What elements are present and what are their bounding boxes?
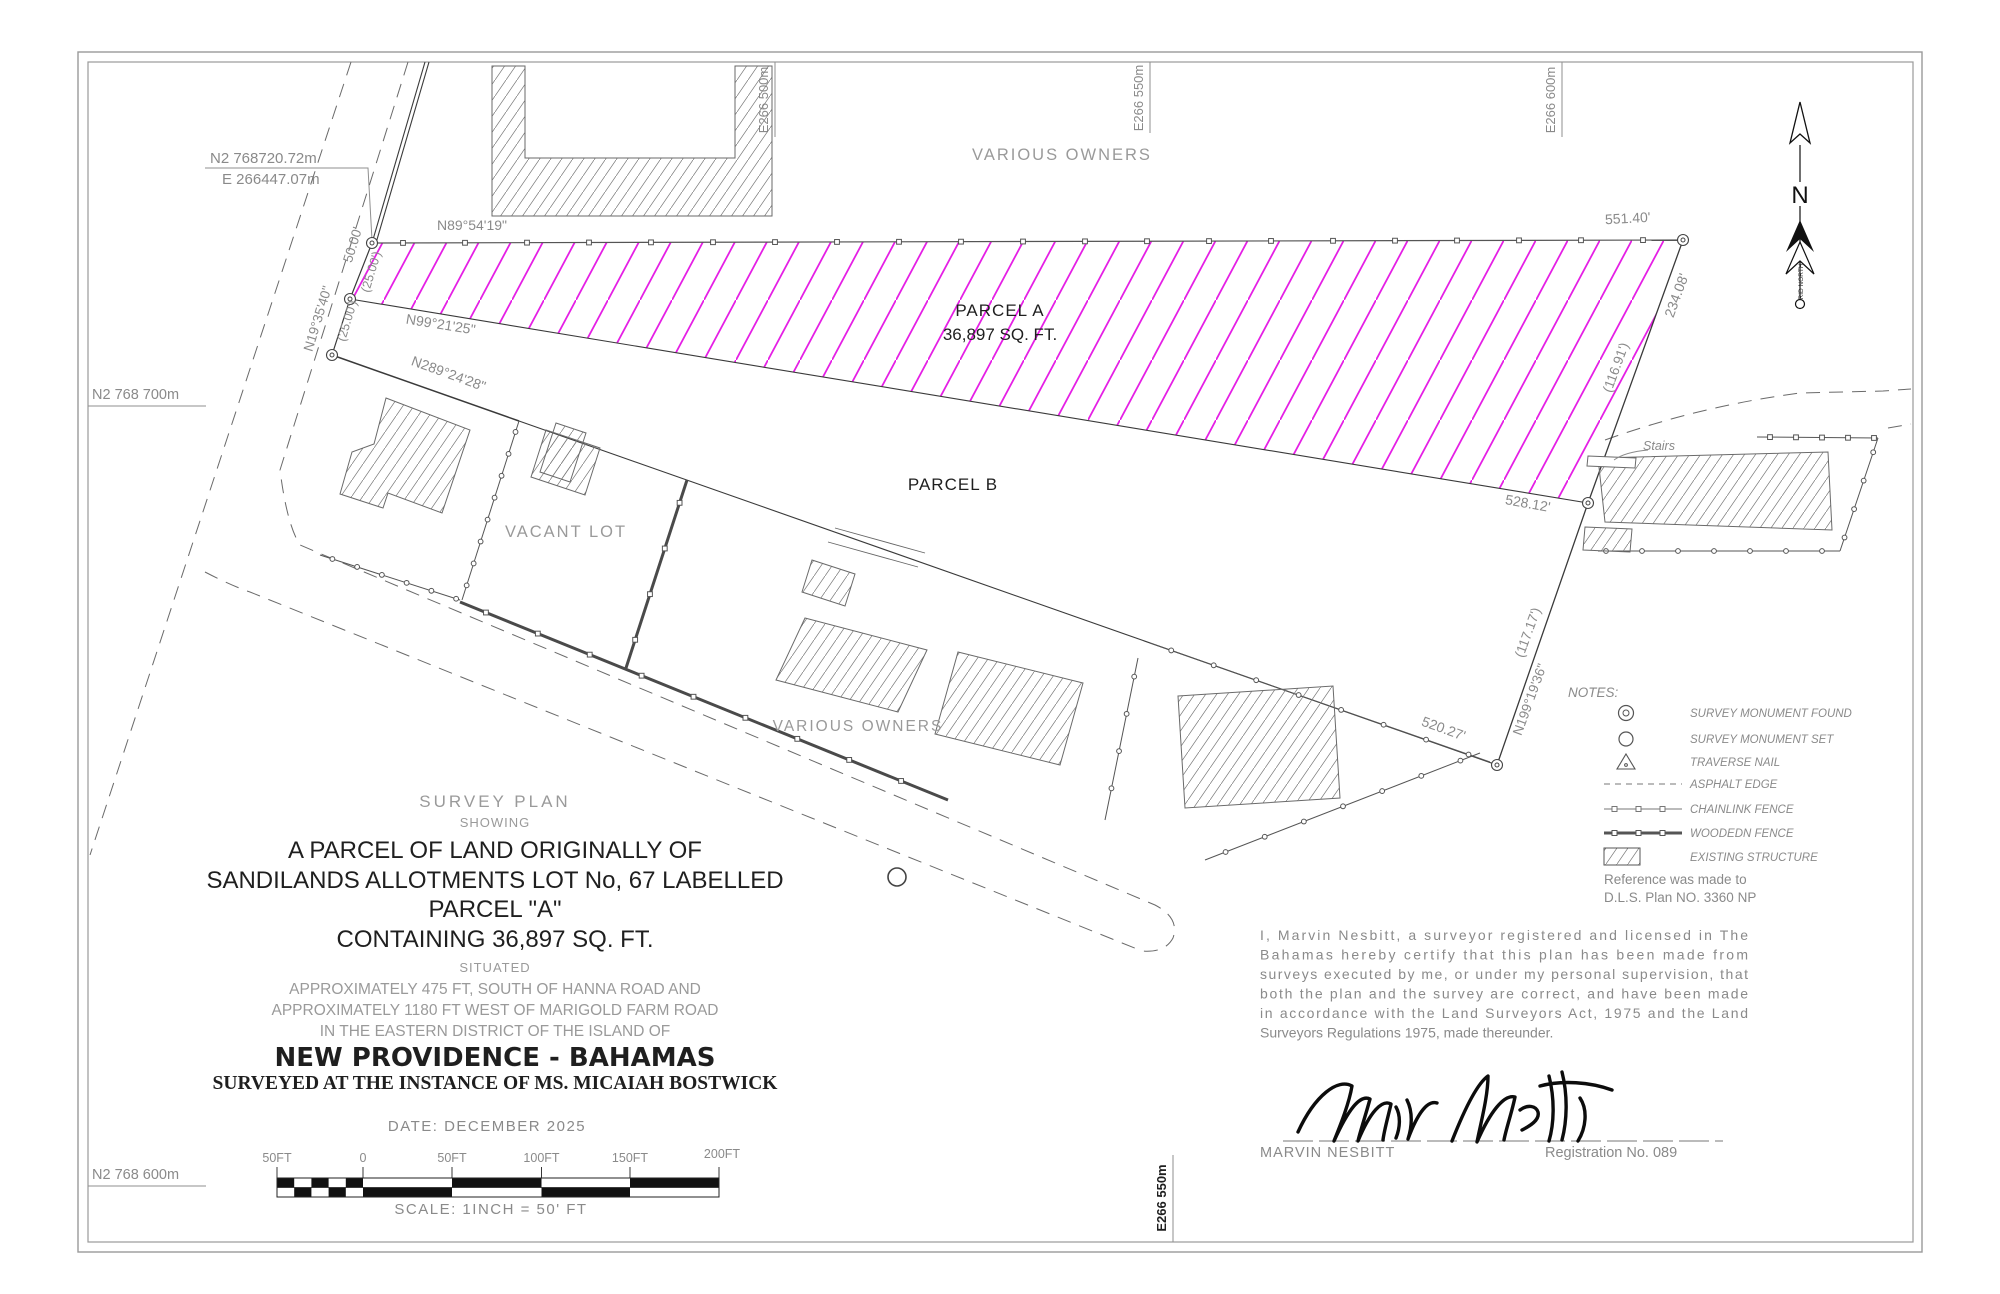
certificate-line: Bahamas hereby certify that this plan ha… — [1260, 947, 1748, 963]
structure-building-7 — [1178, 686, 1340, 808]
structure-building-6 — [935, 652, 1083, 765]
structure-vacant-west-building — [340, 398, 470, 513]
title-situated: SITUATED — [459, 960, 530, 975]
structure-east-shed — [1583, 527, 1632, 552]
bearing-n289: N289°24'28" — [409, 352, 488, 394]
legend-reference-line2: D.L.S. Plan NO. 3360 NP — [1604, 890, 1756, 905]
legend-item-label: TRAVERSE NAIL — [1690, 757, 1780, 769]
grid-label-left-n700: N2 768 700m — [92, 387, 179, 403]
title-island: NEW PROVIDENCE - BAHAMAS — [275, 1043, 716, 1073]
stairs-outline — [1587, 456, 1636, 468]
structure-u-building — [492, 66, 772, 216]
scale-tick-label: 50FT — [437, 1151, 467, 1165]
structure-small-shed — [802, 560, 855, 606]
signature-scribble — [1298, 1072, 1612, 1142]
title-parcel-line3: PARCEL "A" — [428, 896, 561, 923]
scale-bar: DATE: DECEMBER 2025 50FT 0 50FT 100FT 15… — [262, 1118, 740, 1218]
certificate-line: I, Marvin Nesbitt, a surveyor registered… — [1260, 927, 1748, 943]
north-arrow-letter: N — [1791, 182, 1808, 209]
certificate-line: surveys executed by me, or under my pers… — [1260, 966, 1748, 982]
chainlink-fence-east-top — [1757, 435, 1878, 441]
dim-50: 50.00' — [340, 225, 365, 264]
legend-item-label: SURVEY MONUMENT SET — [1690, 734, 1834, 746]
bearing-n89: N89°54'19" — [437, 217, 507, 233]
scale-label: SCALE: 1INCH = 50' FT — [394, 1201, 587, 1218]
legend-item-label: CHAINLINK FENCE — [1690, 804, 1794, 816]
certificate-line: Surveyors Regulations 1975, made thereun… — [1260, 1025, 1553, 1041]
certificate-line: both the plan and the survey are correct… — [1260, 986, 1748, 1002]
survey-plan-canvas: E266 500m E266 550m E266 600m E266 550m … — [0, 0, 2000, 1294]
wooden-fence-vacant-east — [626, 480, 687, 668]
legend-title: NOTES: — [1568, 685, 1619, 700]
legend: NOTES: SURVEY MONUMENT FOUND SURVEY MONU… — [1568, 685, 1852, 905]
scale-tick-label: 0 — [360, 1151, 367, 1165]
parcel-b-label: PARCEL B — [908, 475, 998, 494]
title-instance: SURVEYED AT THE INSTANCE OF MS. MICAIAH … — [213, 1073, 779, 1094]
survey-monument-found-icon — [1619, 706, 1634, 721]
grid-label-top-e600: E266 600m — [1543, 67, 1558, 134]
parcel-a-area-label: 36,897 SQ. FT. — [943, 325, 1057, 344]
dim-25-b: (25.00') — [334, 299, 360, 343]
chainlink-fence-vacant-west — [462, 421, 519, 600]
chainlink-fence-vacant-road — [320, 555, 460, 601]
signatory-name: MARVIN NESBITT — [1260, 1145, 1395, 1161]
scale-tick-label: 50FT — [262, 1151, 292, 1165]
survey-monument-set-icon — [1619, 732, 1633, 746]
existing-structure-icon — [1604, 848, 1640, 865]
registration-number: Registration No. 089 — [1545, 1145, 1677, 1161]
scale-tick-label: 150FT — [612, 1151, 648, 1165]
structure-building-5 — [776, 618, 927, 712]
title-parcel-line2: SANDILANDS ALLOTMENTS LOT No, 67 LABELLE… — [206, 867, 783, 894]
date-label: DATE: DECEMBER 2025 — [388, 1118, 586, 1135]
title-location-line1: APPROXIMATELY 475 FT, SOUTH OF HANNA ROA… — [289, 981, 701, 998]
chainlink-fence-east-bottom — [1598, 549, 1840, 554]
stairs-label: Stairs — [1643, 439, 1675, 453]
title-parcel-line1: A PARCEL OF LAND ORIGINALLY OF — [288, 837, 702, 864]
north-arrow: N GRID NORTH — [1786, 102, 1814, 309]
grid-label-top-e550: E266 550m — [1131, 65, 1146, 132]
legend-item-label: EXISTING STRUCTURE — [1690, 852, 1818, 864]
title-block: SURVEY PLAN SHOWING A PARCEL OF LAND ORI… — [206, 792, 783, 1094]
survey-plan-sheet: E266 500m E266 550m E266 600m E266 550m … — [0, 0, 2000, 1294]
bearing-n19: N19°35'40" — [301, 284, 335, 353]
certificate-line: in accordance with the Land Surveyors Ac… — [1260, 1005, 1748, 1021]
road-end-monument — [888, 868, 906, 886]
wooden-fence-icon — [1604, 831, 1682, 836]
chainlink-fence-mid-lot — [1105, 658, 1138, 820]
chainlink-fence-icon — [1604, 807, 1682, 812]
scale-tick-label: 100FT — [523, 1151, 559, 1165]
traverse-nail-icon — [1617, 754, 1635, 769]
north-arrow-base-circle — [1796, 300, 1805, 309]
title-location-line3: IN THE EASTERN DISTRICT OF THE ISLAND OF — [320, 1023, 671, 1040]
title-survey-plan: SURVEY PLAN — [419, 792, 570, 811]
legend-item-label: SURVEY MONUMENT FOUND — [1690, 708, 1852, 720]
dim-551: 551.40' — [1605, 209, 1651, 227]
chainlink-fence-east-right — [1840, 438, 1878, 551]
corner-coordinate-e: E 266447.07m — [222, 171, 320, 188]
various-owners-top-label: VARIOUS OWNERS — [972, 146, 1152, 164]
north-arrow-caption: GRID NORTH — [1798, 263, 1805, 304]
title-containing: CONTAINING 36,897 SQ. FT. — [337, 926, 654, 953]
legend-item-label: ASPHALT EDGE — [1689, 779, 1778, 791]
north-arrow-head-icon — [1790, 102, 1810, 143]
various-owners-bottom-label: VARIOUS OWNERS — [773, 718, 944, 735]
bearing-n199: N199°19'36" — [1510, 661, 1550, 737]
corner-coordinate-n: N2 768720.72m — [210, 150, 317, 167]
parcel-a-label: PARCEL A — [955, 301, 1044, 320]
scale-tick-label: 200FT — [704, 1147, 740, 1161]
vacant-lot-label: VACANT LOT — [505, 523, 627, 541]
dim-117: (117.17') — [1512, 606, 1544, 660]
grid-label-left-n600: N2 768 600m — [92, 1167, 179, 1183]
legend-reference-line1: Reference was made to — [1604, 872, 1747, 887]
title-showing: SHOWING — [460, 815, 531, 830]
grid-label-bottom-e550: E266 550m — [1154, 1164, 1169, 1231]
certificate-block: I, Marvin Nesbitt, a surveyor registered… — [1260, 927, 1748, 1161]
title-location-line2: APPROXIMATELY 1180 FT WEST OF MARIGOLD F… — [271, 1002, 718, 1019]
legend-item-label: WOODEDN FENCE — [1690, 828, 1794, 840]
corner-coordinate-callout: N2 768720.72m E 266447.07m — [205, 150, 372, 240]
